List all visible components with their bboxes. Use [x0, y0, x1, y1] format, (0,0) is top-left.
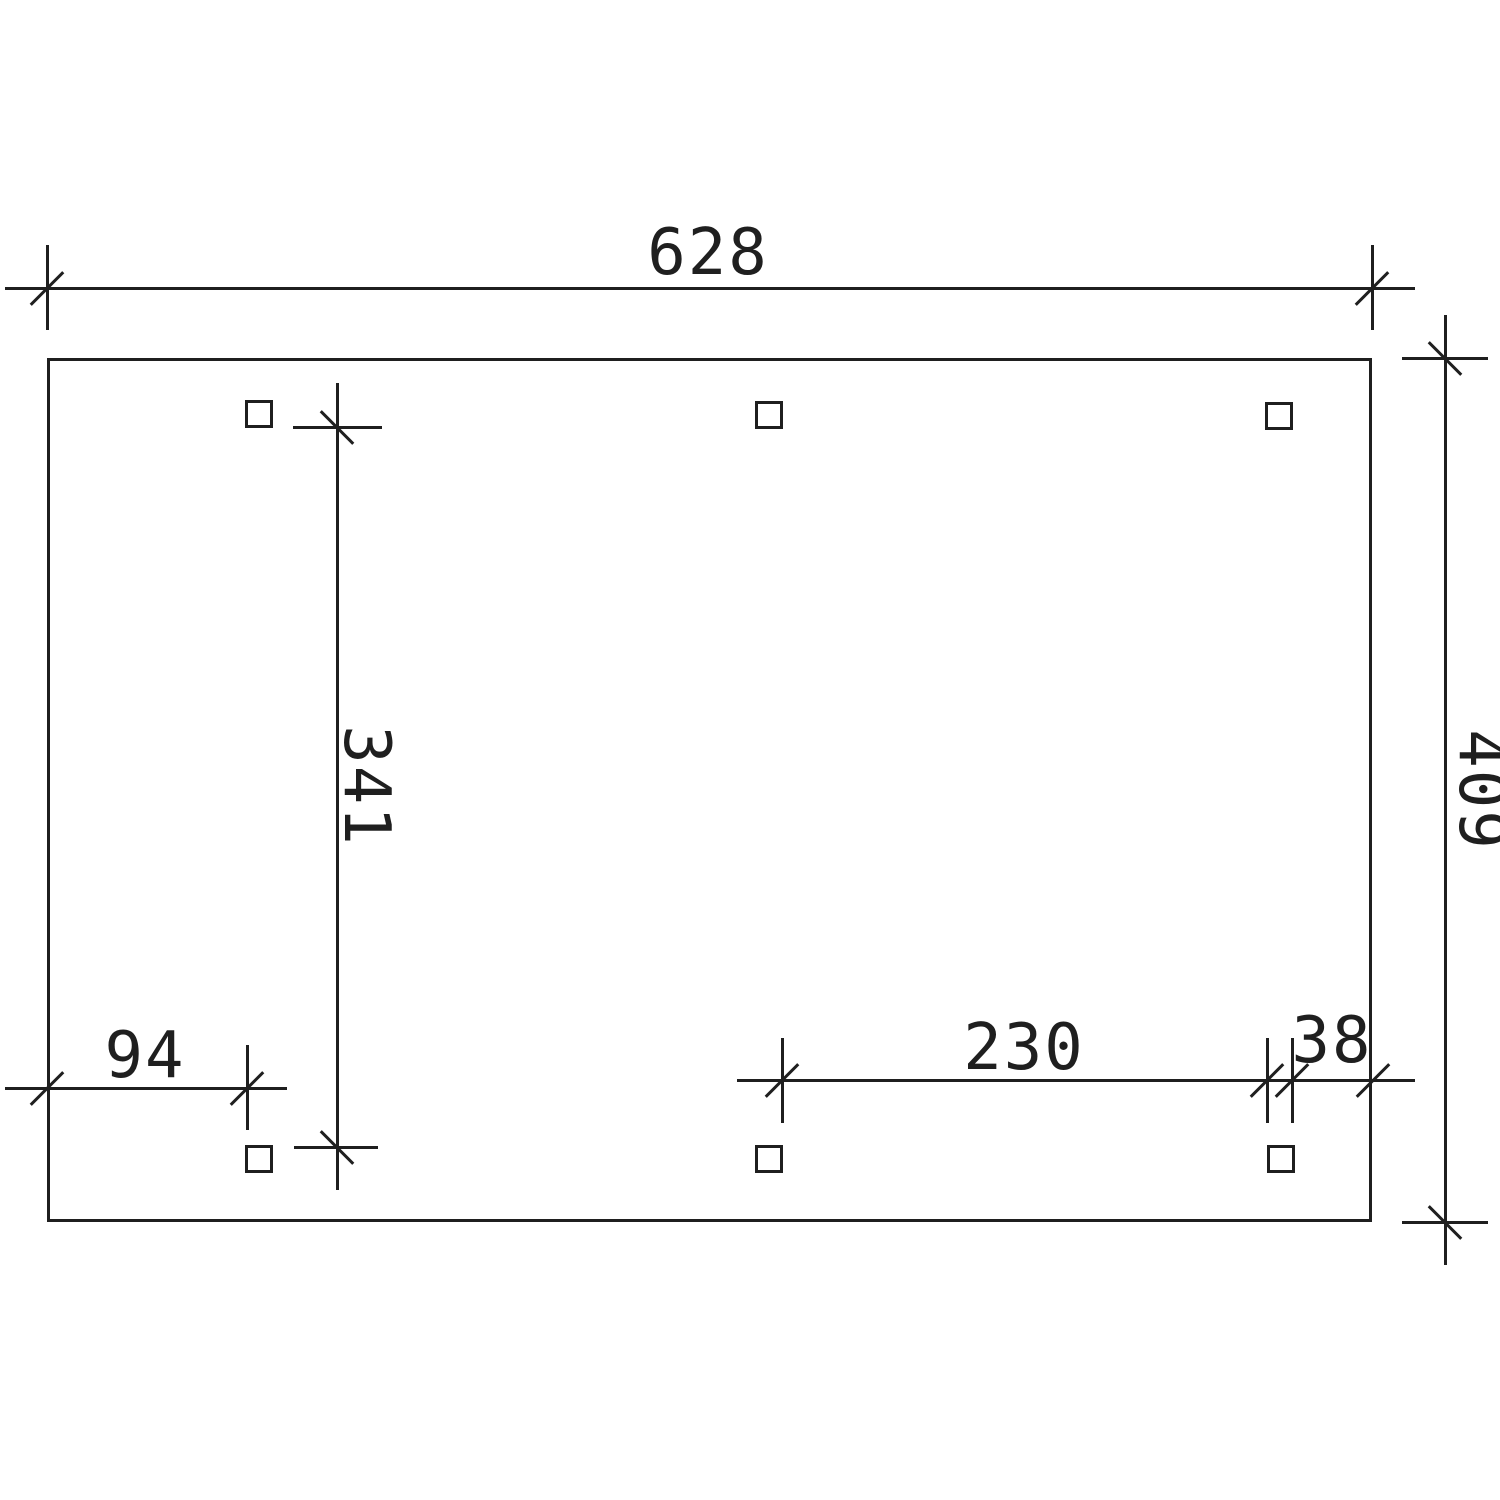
technical-drawing: 628 409 341 94 230 38 — [0, 0, 1500, 1500]
dimension-label-inner-depth: 341 — [334, 725, 398, 847]
post-marker — [245, 400, 273, 428]
dimension-label-post-span: 230 — [963, 1016, 1085, 1080]
dimension-label-width-total: 628 — [647, 221, 769, 285]
post-marker — [245, 1145, 273, 1173]
dimension-label-left-offset: 94 — [104, 1024, 185, 1088]
post-marker — [755, 401, 783, 429]
post-marker — [1265, 402, 1293, 430]
post-marker — [755, 1145, 783, 1173]
dimension-label-depth-total: 409 — [1449, 729, 1500, 851]
post-marker — [1267, 1145, 1295, 1173]
dimension-label-right-offset: 38 — [1291, 1009, 1372, 1073]
